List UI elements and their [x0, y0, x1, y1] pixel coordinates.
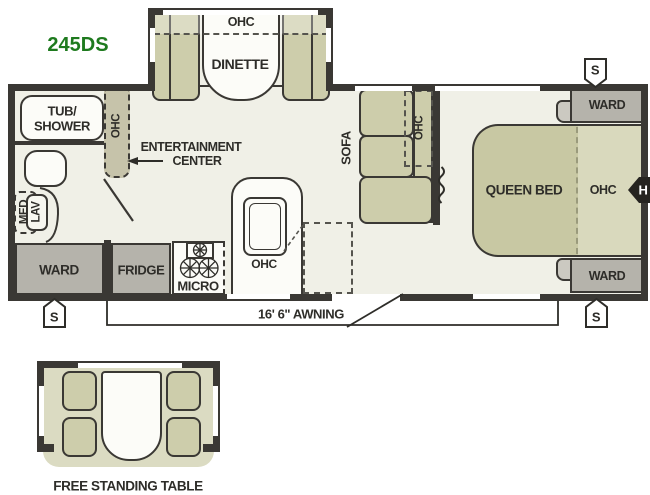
- entertainment-ohc-label: OHC: [111, 114, 123, 138]
- tub-shower-label-line2: SHOWER: [34, 120, 90, 133]
- speaker-top-right-label: S: [591, 64, 599, 77]
- free-standing-table-label: FREE STANDING TABLE: [53, 479, 202, 493]
- dinette-label: DINETTE: [211, 57, 268, 71]
- sofa-label: SOFA: [340, 131, 353, 165]
- model-number: 245DS: [47, 35, 108, 55]
- kitchen-ohc-label: OHC: [251, 258, 276, 270]
- awning-label: 16' 6" AWNING: [258, 308, 344, 321]
- squiggle-symbol: [439, 167, 444, 203]
- hitch-label: H: [639, 184, 648, 197]
- med-label: MED: [19, 200, 31, 224]
- bedroom-ohc-label: OHC: [590, 184, 617, 197]
- entertainment-label-line2: CENTER: [173, 155, 222, 168]
- tub-shower-label-line1: TUB/: [48, 105, 77, 118]
- speaker-bottom-left-label: S: [50, 311, 58, 324]
- entertainment-arrowhead: [127, 157, 138, 165]
- micro-label: MICRO: [177, 280, 218, 293]
- wardrobe-bottom-right-label: WARD: [589, 270, 626, 283]
- kitchen-ohc-dashed-diagonal: [284, 225, 303, 251]
- awning-pointer-line: [347, 294, 403, 327]
- speaker-bottom-right-label: S: [592, 311, 600, 324]
- queen-bed-label: QUEEN BED: [486, 183, 563, 197]
- floorplan-canvas: 245DS OHC DINETTE TUB/ SHOWER MED LAV OH…: [0, 0, 650, 495]
- wardrobe-top-right-label: WARD: [589, 99, 626, 112]
- entertainment-label-line1: ENTERTAINMENT: [141, 141, 242, 154]
- bathroom-door-line: [104, 179, 133, 221]
- lav-label: LAV: [31, 202, 43, 223]
- linework-overlay: [0, 0, 650, 495]
- sofa-ohc-label: OHC: [414, 116, 426, 140]
- fridge-label: FRIDGE: [118, 264, 165, 277]
- range-burners: [181, 244, 219, 278]
- dinette-ohc-label: OHC: [228, 16, 255, 29]
- wardrobe-bottom-left-label: WARD: [39, 263, 79, 277]
